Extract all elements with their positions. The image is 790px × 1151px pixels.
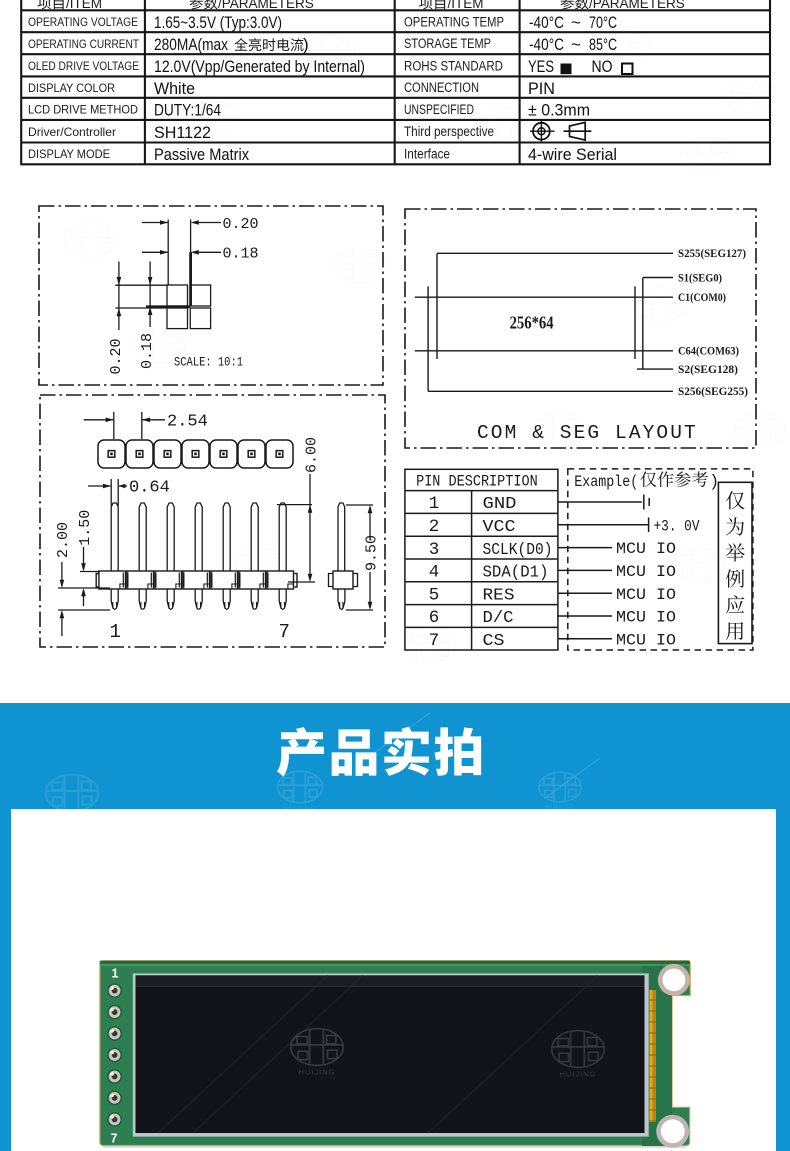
svg-text:6: 6 — [429, 608, 440, 628]
svg-text:S255(SEG127): S255(SEG127) — [678, 246, 746, 260]
svg-text:12.0V(Vpp/Generated by Interna: 12.0V(Vpp/Generated by Internal) — [154, 57, 365, 76]
svg-text:OPERATING VOLTAGE: OPERATING VOLTAGE — [28, 15, 138, 29]
svg-text:2.00: 2.00 — [55, 522, 72, 558]
svg-text:LCD DRIVE METHOD: LCD DRIVE METHOD — [28, 103, 138, 117]
svg-text:1: 1 — [112, 967, 119, 981]
svg-text:~: ~ — [571, 35, 581, 54]
svg-text:SDA(D1): SDA(D1) — [483, 563, 549, 582]
svg-text:/ITEM: /ITEM — [448, 0, 484, 11]
svg-text:HUIJING: HUIJING — [299, 1067, 336, 1076]
svg-text:MCU IO: MCU IO — [616, 563, 676, 581]
svg-text:9.50: 9.50 — [364, 535, 381, 571]
svg-text:-40°C: -40°C — [529, 35, 564, 54]
svg-text:CONNECTION: CONNECTION — [404, 80, 479, 95]
svg-text:7: 7 — [279, 621, 290, 643]
svg-text:4-wire Serial: 4-wire Serial — [528, 145, 617, 164]
svg-text:~: ~ — [571, 13, 581, 32]
svg-text:1: 1 — [429, 494, 440, 514]
svg-text:6.00: 6.00 — [303, 437, 320, 473]
svg-text:256*64: 256*64 — [510, 313, 554, 333]
svg-text:/PARAMETERS: /PARAMETERS — [589, 0, 685, 11]
svg-text:0.18: 0.18 — [139, 333, 156, 369]
svg-text:Third perspective: Third perspective — [404, 124, 494, 139]
svg-text:2.54: 2.54 — [167, 413, 208, 432]
svg-text:MCU IO: MCU IO — [616, 631, 676, 649]
svg-text:CS: CS — [483, 631, 505, 650]
svg-text:HUIJING: HUIJING — [560, 1069, 597, 1078]
svg-text:MCU IO: MCU IO — [616, 540, 676, 558]
svg-text:1.50: 1.50 — [77, 510, 94, 546]
svg-text:MCU IO: MCU IO — [616, 586, 676, 604]
svg-text:NO: NO — [592, 57, 613, 76]
svg-text:S1(SEG0): S1(SEG0) — [678, 270, 722, 284]
svg-text:± 0.3mm: ± 0.3mm — [528, 101, 590, 120]
svg-text:RES: RES — [483, 585, 515, 604]
svg-text:Passive Matrix: Passive Matrix — [154, 145, 249, 164]
svg-text:280MA(max: 280MA(max — [154, 35, 228, 54]
svg-text:White: White — [154, 79, 195, 98]
svg-text:OLED DRIVE VOLTAGE: OLED DRIVE VOLTAGE — [28, 59, 139, 73]
svg-text:/ITEM: /ITEM — [66, 0, 102, 11]
svg-text:7: 7 — [111, 1132, 118, 1146]
svg-text:DISPLAY COLOR: DISPLAY COLOR — [28, 81, 115, 95]
svg-text:OPERATING TEMP: OPERATING TEMP — [404, 14, 504, 29]
svg-text:PIN DESCRIPTION: PIN DESCRIPTION — [416, 472, 538, 490]
svg-text:UNSPECIFIED: UNSPECIFIED — [404, 102, 474, 117]
svg-text:DISPLAY MODE: DISPLAY MODE — [28, 147, 110, 161]
svg-text:+3. 0V: +3. 0V — [654, 518, 701, 536]
svg-text:85°C: 85°C — [589, 35, 617, 54]
svg-text:Driver/Controller: Driver/Controller — [28, 125, 116, 139]
svg-text:YES: YES — [528, 57, 554, 76]
svg-text:VCC: VCC — [483, 517, 516, 536]
svg-text:0.64: 0.64 — [129, 479, 170, 498]
svg-text:OPERATING CURRENT: OPERATING CURRENT — [28, 37, 140, 51]
svg-text:): ) — [303, 35, 309, 54]
svg-text:GND: GND — [483, 494, 517, 513]
svg-text:7: 7 — [429, 631, 440, 651]
svg-text:STORAGE TEMP: STORAGE TEMP — [404, 36, 491, 51]
svg-text:D/C: D/C — [483, 608, 514, 627]
svg-text:5: 5 — [429, 585, 440, 605]
svg-text:COM & SEG LAYOUT: COM & SEG LAYOUT — [477, 422, 698, 444]
svg-text:1: 1 — [110, 621, 121, 643]
svg-text:SH1122: SH1122 — [154, 123, 211, 142]
svg-text:C1(COM0): C1(COM0) — [678, 290, 726, 304]
svg-text:Interface: Interface — [404, 146, 450, 161]
svg-text:2: 2 — [429, 517, 440, 537]
svg-text:/PARAMETERS: /PARAMETERS — [218, 0, 314, 11]
svg-text:SCALE: 10:1: SCALE: 10:1 — [174, 355, 243, 370]
svg-text:Example(: Example( — [574, 473, 638, 491]
svg-text:PIN: PIN — [528, 79, 555, 98]
svg-text:1.65~3.5V (Typ:3.0V): 1.65~3.5V (Typ:3.0V) — [154, 13, 282, 32]
svg-text:4: 4 — [429, 563, 440, 583]
svg-text:S256(SEG255): S256(SEG255) — [678, 384, 748, 398]
svg-text:0.20: 0.20 — [223, 216, 259, 233]
svg-text:MCU IO: MCU IO — [616, 609, 676, 627]
svg-text:0.20: 0.20 — [108, 338, 125, 374]
svg-text:DUTY:1/64: DUTY:1/64 — [154, 101, 221, 120]
svg-text:C64(COM63): C64(COM63) — [678, 344, 739, 358]
svg-text:70°C: 70°C — [589, 13, 617, 32]
svg-text:3: 3 — [429, 540, 440, 560]
svg-text:-40°C: -40°C — [529, 13, 564, 32]
svg-text:0.18: 0.18 — [223, 246, 259, 263]
svg-text:SCLK(D0): SCLK(D0) — [483, 540, 553, 559]
svg-text:S2(SEG128): S2(SEG128) — [678, 362, 738, 376]
svg-text:ROHS STANDARD: ROHS STANDARD — [404, 58, 503, 73]
